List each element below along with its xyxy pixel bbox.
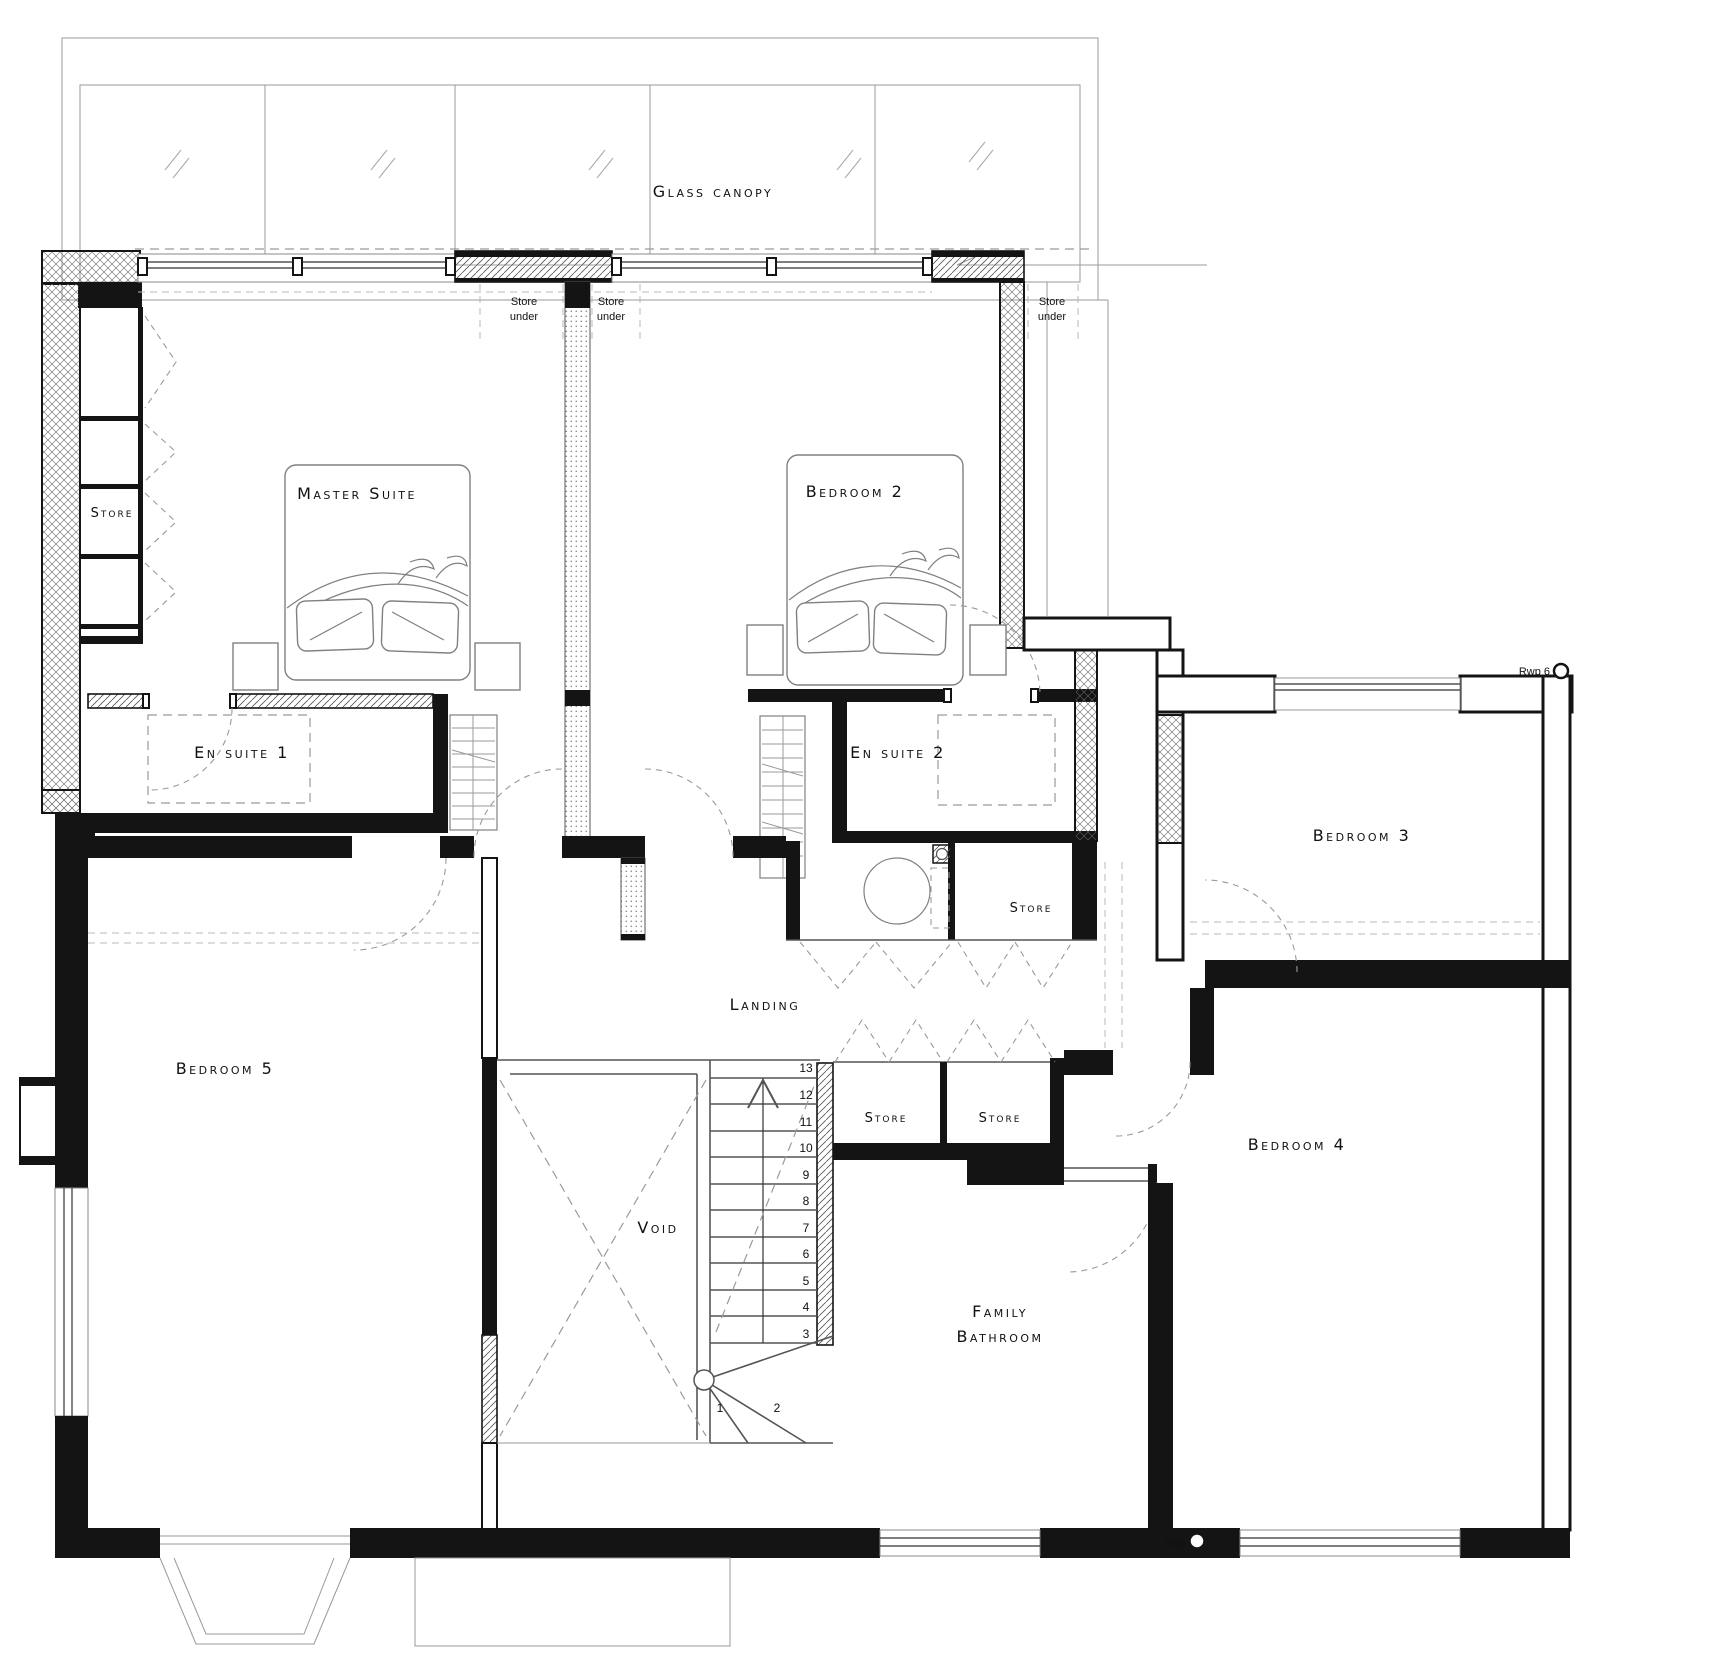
floor-plan: Glass canopy Store Master Suite Bedroom …: [0, 0, 1728, 1661]
landing-store-a-label: Store: [865, 1111, 908, 1126]
store-under-3-line2: under: [1038, 311, 1066, 323]
bedroom-2-door-swing: [645, 769, 733, 857]
en-suite-1: [42, 694, 448, 858]
stair-step-numbers: 13 12 11 10 9 8 7 6 5 4 3 2 1: [717, 1061, 813, 1415]
bedroom-3-label: Bedroom 3: [1313, 826, 1412, 845]
bifold-door-icon: [835, 1020, 1055, 1062]
stair-number-11: 11: [800, 1115, 813, 1129]
store-under-1-line1: Store: [511, 296, 537, 308]
bay-window: [160, 1536, 350, 1644]
rooflight-outline: [938, 715, 1055, 805]
bedroom-4-window: [1240, 1530, 1460, 1556]
bathroom-window: [880, 1530, 1040, 1556]
rwp-6-label: Rwp 6: [1519, 666, 1550, 678]
bedroom-5-door-swing: [354, 858, 446, 950]
master-shelf-unit: [450, 715, 497, 830]
bedroom-3-window: [1275, 678, 1460, 710]
rwp-label: Rwp: [1164, 1537, 1186, 1549]
stair-number-3: 3: [803, 1327, 810, 1341]
south-wall: [55, 1528, 1570, 1646]
wall-store-label: Store: [91, 506, 134, 521]
stair-number-4: 4: [803, 1300, 810, 1314]
newel-post-icon: [694, 1370, 714, 1390]
bedroom-4-label: Bedroom 4: [1248, 1135, 1347, 1154]
floor-plan-drawing: Glass canopy Store Master Suite Bedroom …: [0, 0, 1728, 1661]
cylinder-store-label: Store: [1010, 901, 1053, 916]
store-under-2-line2: under: [597, 311, 625, 323]
glass-canopy-label: Glass canopy: [653, 182, 774, 201]
family-bathroom-label-line1: Family: [972, 1302, 1028, 1321]
bedroom-2-label: Bedroom 2: [806, 482, 905, 501]
store-under-2-line1: Store: [598, 296, 624, 308]
landing-store-b-label: Store: [979, 1111, 1022, 1126]
stair-number-7: 7: [803, 1221, 810, 1235]
north-window-1: [138, 254, 455, 282]
landing-north-wall: [55, 769, 786, 950]
wall-store-closet: [80, 307, 176, 644]
stair-number-5: 5: [803, 1274, 810, 1288]
family-bathroom-label-line2: Bathroom: [956, 1327, 1043, 1346]
chimney-projection: [20, 1078, 56, 1164]
north-window-2: [612, 254, 932, 282]
store-under-1-line2: under: [510, 311, 538, 323]
en-suite-1-label: En suite 1: [194, 743, 290, 762]
void-area: [497, 1060, 820, 1443]
stair-number-8: 8: [803, 1194, 810, 1208]
bedroom-5-walls: [20, 858, 497, 1530]
stair-number-6: 6: [803, 1247, 810, 1261]
bedroom-5-window: [55, 1188, 88, 1416]
rwp6-pipe-icon: [1554, 664, 1568, 678]
spine-wall: [565, 282, 590, 856]
en-suite-2-label: En suite 2: [850, 743, 946, 762]
family-bathroom-walls: [1055, 1164, 1173, 1530]
stair-number-2: 2: [774, 1401, 781, 1415]
landing-label: Landing: [730, 995, 801, 1014]
bifold-door-icon: [800, 942, 1072, 988]
bedroom-5-label: Bedroom 5: [176, 1059, 275, 1078]
stair-winders: [704, 1336, 833, 1443]
water-cylinder-icon: [864, 858, 930, 924]
bedroom-4-door-swing: [1116, 1062, 1190, 1136]
void-label: Void: [637, 1218, 678, 1237]
stair-number-1: 1: [717, 1401, 724, 1415]
corridor-dashes: [1105, 862, 1122, 1048]
stairs: [694, 1078, 833, 1443]
bathroom-door-swing: [1067, 1182, 1157, 1272]
store-under-3-line1: Store: [1039, 296, 1065, 308]
landing-stores: [817, 1020, 1064, 1345]
rwp-pipe-icon: [1190, 1534, 1205, 1549]
bedroom-4-entry: [1064, 988, 1214, 1136]
stair-number-10: 10: [799, 1141, 813, 1155]
master-suite-label: Master Suite: [297, 484, 417, 503]
stair-number-9: 9: [803, 1168, 810, 1182]
master-door-swing: [474, 769, 562, 857]
bifold-door-icon: [145, 316, 176, 621]
bedroom-3-door-swing: [1205, 880, 1297, 972]
stair-number-12: 12: [799, 1088, 813, 1102]
glass-canopy: [62, 38, 1207, 616]
stair-number-13: 13: [799, 1061, 813, 1075]
glass-pane-icon: [165, 142, 993, 178]
ground-floor-outline: [415, 1558, 730, 1646]
